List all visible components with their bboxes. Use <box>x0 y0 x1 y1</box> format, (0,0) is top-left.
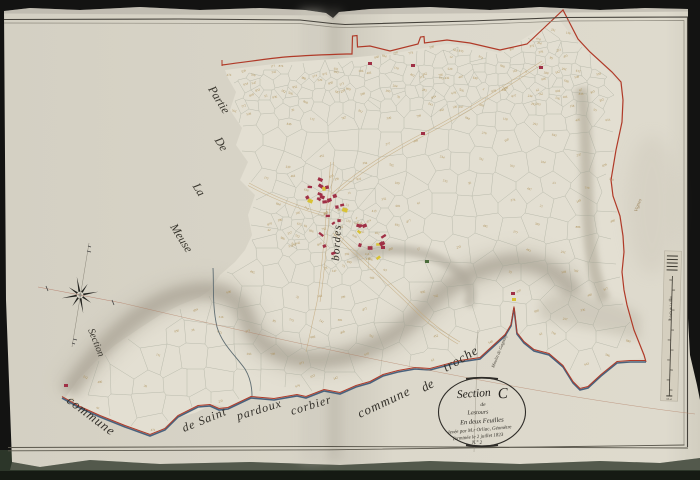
svg-text:395: 395 <box>386 89 392 94</box>
svg-text:12: 12 <box>449 55 453 59</box>
svg-text:706: 706 <box>251 73 257 78</box>
svg-text:413: 413 <box>372 209 377 213</box>
svg-text:Lastours: Lastours <box>466 409 489 416</box>
svg-text:835: 835 <box>579 92 584 96</box>
svg-text:403: 403 <box>366 71 372 76</box>
svg-text:397: 397 <box>459 105 464 109</box>
svg-text:886: 886 <box>576 225 581 229</box>
svg-text:432: 432 <box>445 76 450 80</box>
svg-text:681: 681 <box>396 204 401 208</box>
svg-text:464: 464 <box>290 174 296 178</box>
svg-text:282: 282 <box>345 252 350 256</box>
svg-text:410: 410 <box>366 257 371 261</box>
svg-text:874: 874 <box>279 64 284 68</box>
svg-text:381: 381 <box>338 318 343 322</box>
svg-text:762: 762 <box>232 109 238 114</box>
svg-text:158: 158 <box>570 104 575 108</box>
svg-text:547: 547 <box>251 81 257 85</box>
svg-text:504: 504 <box>393 84 399 89</box>
svg-text:471: 471 <box>151 428 156 432</box>
svg-text:23: 23 <box>552 181 556 185</box>
svg-text:770: 770 <box>585 186 590 190</box>
svg-text:105: 105 <box>563 95 568 99</box>
svg-text:474: 474 <box>227 73 232 77</box>
svg-text:252: 252 <box>561 250 567 255</box>
svg-text:M.et: M.et <box>667 398 673 401</box>
svg-text:666: 666 <box>310 335 316 339</box>
svg-text:529: 529 <box>448 67 453 71</box>
svg-text:114: 114 <box>365 252 370 256</box>
svg-text:821: 821 <box>356 177 362 182</box>
svg-text:42: 42 <box>267 228 271 232</box>
svg-text:320: 320 <box>386 116 392 120</box>
svg-text:bordes: bordes <box>330 224 344 261</box>
svg-text:306: 306 <box>359 69 364 73</box>
svg-text:677: 677 <box>511 94 517 98</box>
svg-text:760: 760 <box>369 276 374 280</box>
svg-text:330: 330 <box>286 165 291 169</box>
svg-text:Echelle de 1 a 2500: Echelle de 1 a 2500 <box>668 296 673 320</box>
svg-text:653: 653 <box>605 118 610 122</box>
svg-text:294: 294 <box>362 161 367 165</box>
svg-text:372: 372 <box>529 44 535 49</box>
svg-text:815: 815 <box>459 49 465 54</box>
svg-text:316: 316 <box>219 315 224 319</box>
svg-text:846: 846 <box>287 122 292 126</box>
svg-text:703: 703 <box>510 164 516 169</box>
svg-text:292: 292 <box>562 67 568 72</box>
svg-text:782: 782 <box>574 269 579 273</box>
svg-text:480: 480 <box>97 380 103 385</box>
svg-text:189: 189 <box>340 295 346 299</box>
svg-text:180: 180 <box>277 218 283 223</box>
svg-text:844: 844 <box>502 88 507 92</box>
svg-text:273: 273 <box>511 198 516 202</box>
svg-text:147: 147 <box>332 269 337 273</box>
svg-text:N.° 2: N.° 2 <box>471 441 483 446</box>
svg-text:393: 393 <box>247 352 252 356</box>
svg-text:529: 529 <box>317 78 322 82</box>
svg-text:277: 277 <box>385 142 391 147</box>
svg-text:852: 852 <box>292 85 298 90</box>
svg-text:de: de <box>480 402 486 408</box>
svg-text:Section: Section <box>456 387 491 401</box>
svg-text:895: 895 <box>420 290 426 295</box>
svg-text:234: 234 <box>528 94 534 99</box>
